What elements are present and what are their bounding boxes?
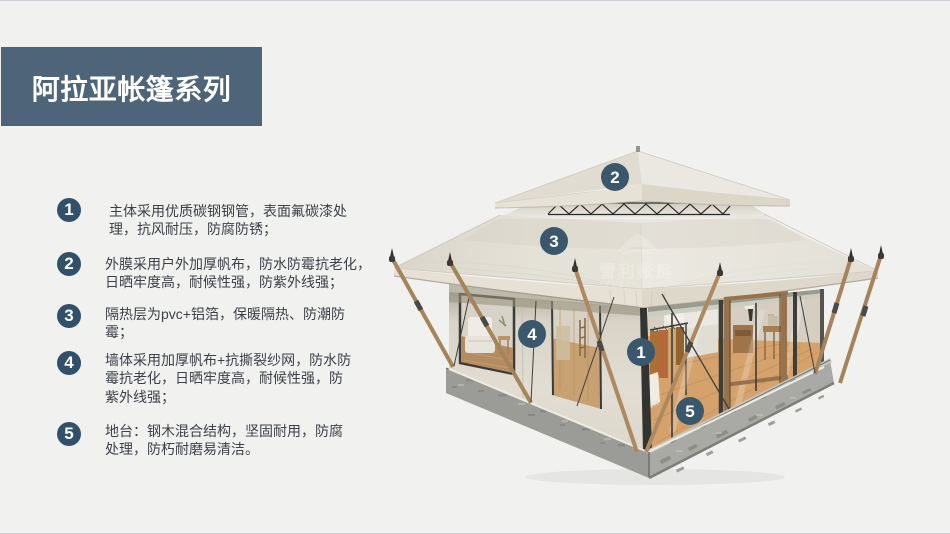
svg-text:1: 1 [636,343,645,362]
svg-text:2: 2 [610,168,619,187]
svg-text:3: 3 [549,232,558,251]
svg-text:4: 4 [527,325,537,344]
svg-text:XUELI TENT: XUELI TENT [604,280,669,289]
svg-text:5: 5 [685,402,694,421]
svg-text:雪利帐房: 雪利帐房 [599,261,675,281]
